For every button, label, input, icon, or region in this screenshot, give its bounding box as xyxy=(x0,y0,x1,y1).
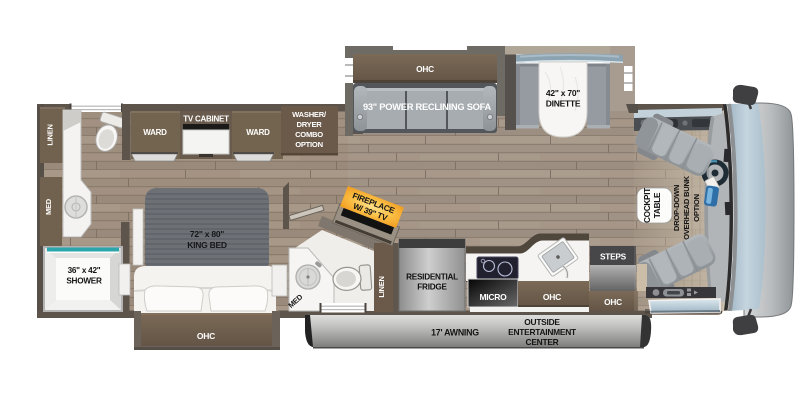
svg-text:SHOWER: SHOWER xyxy=(66,277,102,286)
svg-text:DINETTE: DINETTE xyxy=(546,99,581,109)
svg-text:OHC: OHC xyxy=(416,64,434,74)
svg-text:STEPS: STEPS xyxy=(600,252,627,262)
svg-text:93" POWER RECLINING SOFA: 93" POWER RECLINING SOFA xyxy=(363,102,492,112)
svg-text:MED: MED xyxy=(44,198,53,215)
svg-text:ENTERTAINMENT: ENTERTAINMENT xyxy=(508,327,577,337)
svg-text:COCKPIT: COCKPIT xyxy=(643,188,652,223)
svg-text:OVERHEAD BUNK: OVERHEAD BUNK xyxy=(682,175,691,240)
svg-text:MICRO: MICRO xyxy=(479,292,507,302)
svg-text:KING BED: KING BED xyxy=(187,240,227,250)
svg-text:TV CABINET: TV CABINET xyxy=(183,115,229,124)
svg-text:OHC: OHC xyxy=(604,297,622,307)
svg-text:72" x 80": 72" x 80" xyxy=(190,229,224,239)
svg-text:OPTION: OPTION xyxy=(692,194,701,222)
svg-text:LINEN: LINEN xyxy=(377,276,386,297)
svg-text:17' AWNING: 17' AWNING xyxy=(431,328,479,338)
svg-text:36" x 42": 36" x 42" xyxy=(68,266,101,275)
svg-text:RESIDENTIAL: RESIDENTIAL xyxy=(406,273,458,282)
svg-text:OUTSIDE: OUTSIDE xyxy=(524,317,560,327)
svg-text:CENTER: CENTER xyxy=(526,337,559,347)
svg-text:COMBO: COMBO xyxy=(295,130,323,139)
svg-text:WARD: WARD xyxy=(246,128,270,137)
svg-text:WASHER/: WASHER/ xyxy=(292,110,327,119)
svg-text:TABLE: TABLE xyxy=(653,192,662,218)
svg-text:OPTION: OPTION xyxy=(295,140,323,149)
svg-text:FRIDGE: FRIDGE xyxy=(417,283,447,292)
svg-text:DRYER: DRYER xyxy=(296,120,322,129)
svg-text:LINEN: LINEN xyxy=(46,124,55,145)
svg-text:WARD: WARD xyxy=(143,128,167,137)
svg-text:OHC: OHC xyxy=(197,331,215,341)
svg-text:42" x 70": 42" x 70" xyxy=(546,88,580,98)
svg-text:DROP-DOWN: DROP-DOWN xyxy=(672,185,681,231)
svg-text:OHC: OHC xyxy=(543,292,561,302)
